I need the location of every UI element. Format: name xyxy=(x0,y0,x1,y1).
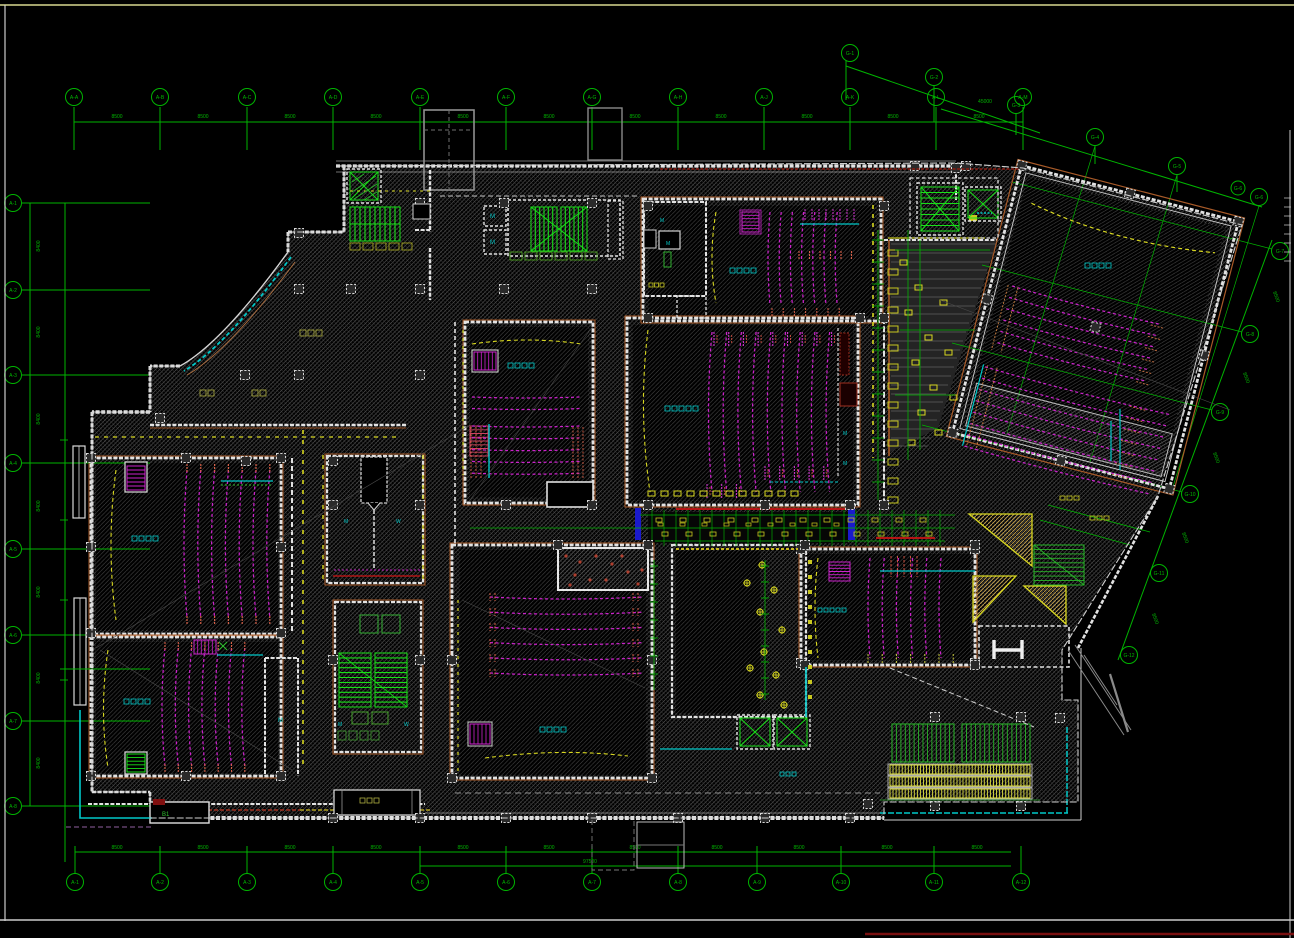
svg-text:G-7: G-7 xyxy=(1276,249,1285,255)
svg-text:G-3: G-3 xyxy=(1012,103,1021,109)
svg-text:8400: 8400 xyxy=(36,500,42,511)
svg-text:8400: 8400 xyxy=(36,672,42,683)
svg-text:M: M xyxy=(338,722,342,728)
svg-text:8500: 8500 xyxy=(197,845,208,851)
svg-text:8500: 8500 xyxy=(111,845,122,851)
svg-text:8500: 8500 xyxy=(629,845,640,851)
svg-text:A-1: A-1 xyxy=(71,880,79,886)
svg-text:8400: 8400 xyxy=(36,240,42,251)
svg-text:M: M xyxy=(344,519,348,525)
svg-text:8500: 8500 xyxy=(543,114,554,120)
svg-text:A-3: A-3 xyxy=(243,880,251,886)
svg-text:A-1: A-1 xyxy=(9,201,17,207)
svg-text:A-F: A-F xyxy=(502,95,510,101)
svg-text:8500: 8500 xyxy=(197,114,208,120)
svg-text:A-6: A-6 xyxy=(9,633,17,639)
svg-text:A-H: A-H xyxy=(674,95,683,101)
svg-text:8500: 8500 xyxy=(543,845,554,851)
svg-text:M: M xyxy=(660,218,664,224)
svg-text:G-10: G-10 xyxy=(1184,492,1195,498)
svg-text:8500: 8500 xyxy=(801,114,812,120)
svg-text:A-11: A-11 xyxy=(929,880,939,886)
svg-text:G-6: G-6 xyxy=(1234,186,1243,192)
svg-text:A-12: A-12 xyxy=(1016,880,1027,886)
svg-text:A-C: A-C xyxy=(243,95,252,101)
svg-text:A-J: A-J xyxy=(760,95,768,101)
svg-text:A-2: A-2 xyxy=(156,880,164,886)
svg-text:A-4: A-4 xyxy=(329,880,337,886)
svg-text:A-K: A-K xyxy=(846,95,855,101)
svg-text:8400: 8400 xyxy=(36,586,42,597)
svg-text:G-5: G-5 xyxy=(1173,164,1182,170)
svg-text:8500: 8500 xyxy=(881,845,892,851)
svg-text:A-3: A-3 xyxy=(9,373,17,379)
svg-text:G-9: G-9 xyxy=(1216,410,1225,416)
svg-text:G-8: G-8 xyxy=(1246,332,1255,338)
svg-text:8500: 8500 xyxy=(971,845,982,851)
svg-text:A-2: A-2 xyxy=(9,288,17,294)
svg-text:8500: 8500 xyxy=(284,845,295,851)
svg-text:A-B: A-B xyxy=(156,95,165,101)
svg-text:8400: 8400 xyxy=(36,413,42,424)
svg-text:B1: B1 xyxy=(162,812,170,818)
svg-text:8500: 8500 xyxy=(370,114,381,120)
svg-text:M: M xyxy=(843,431,847,437)
svg-text:G-4: G-4 xyxy=(1091,135,1100,141)
svg-text:A-8: A-8 xyxy=(674,880,682,886)
svg-text:G-11: G-11 xyxy=(1154,571,1165,577)
svg-text:W: W xyxy=(396,519,401,525)
svg-text:8500: 8500 xyxy=(711,845,722,851)
svg-text:8500: 8500 xyxy=(793,845,804,851)
svg-text:8500: 8500 xyxy=(715,114,726,120)
svg-text:8400: 8400 xyxy=(36,326,42,337)
svg-text:M: M xyxy=(490,240,495,246)
svg-text:G-1: G-1 xyxy=(846,51,855,57)
svg-text:A-D: A-D xyxy=(329,95,338,101)
svg-text:8500: 8500 xyxy=(887,114,898,120)
svg-text:A-E: A-E xyxy=(416,95,425,101)
svg-text:A-10: A-10 xyxy=(836,880,847,886)
svg-text:97500: 97500 xyxy=(583,859,597,865)
svg-text:M: M xyxy=(278,718,283,724)
svg-text:A-9: A-9 xyxy=(753,880,761,886)
svg-text:8500: 8500 xyxy=(457,845,468,851)
svg-text:M: M xyxy=(843,461,847,467)
svg-text:A-7: A-7 xyxy=(588,880,596,886)
svg-text:M: M xyxy=(490,214,495,220)
svg-text:8500: 8500 xyxy=(370,845,381,851)
svg-text:A-A: A-A xyxy=(70,95,79,101)
svg-text:A-7: A-7 xyxy=(9,719,17,725)
svg-text:8400: 8400 xyxy=(36,757,42,768)
svg-text:8500: 8500 xyxy=(111,114,122,120)
svg-text:A-5: A-5 xyxy=(416,880,424,886)
svg-text:A-8: A-8 xyxy=(9,804,17,810)
svg-text:8500: 8500 xyxy=(457,114,468,120)
svg-text:G-12: G-12 xyxy=(1123,653,1134,659)
svg-text:A-4: A-4 xyxy=(9,461,17,467)
svg-text:8500: 8500 xyxy=(284,114,295,120)
svg-text:W: W xyxy=(404,722,409,728)
svg-text:G-2: G-2 xyxy=(930,75,939,81)
svg-text:A-5: A-5 xyxy=(9,547,17,553)
svg-text:A-6: A-6 xyxy=(502,880,510,886)
svg-text:M: M xyxy=(666,241,670,247)
svg-text:8500: 8500 xyxy=(629,114,640,120)
svg-text:45000: 45000 xyxy=(978,99,992,105)
svg-text:A-G: A-G xyxy=(588,95,597,101)
svg-text:G-6: G-6 xyxy=(1255,195,1264,201)
